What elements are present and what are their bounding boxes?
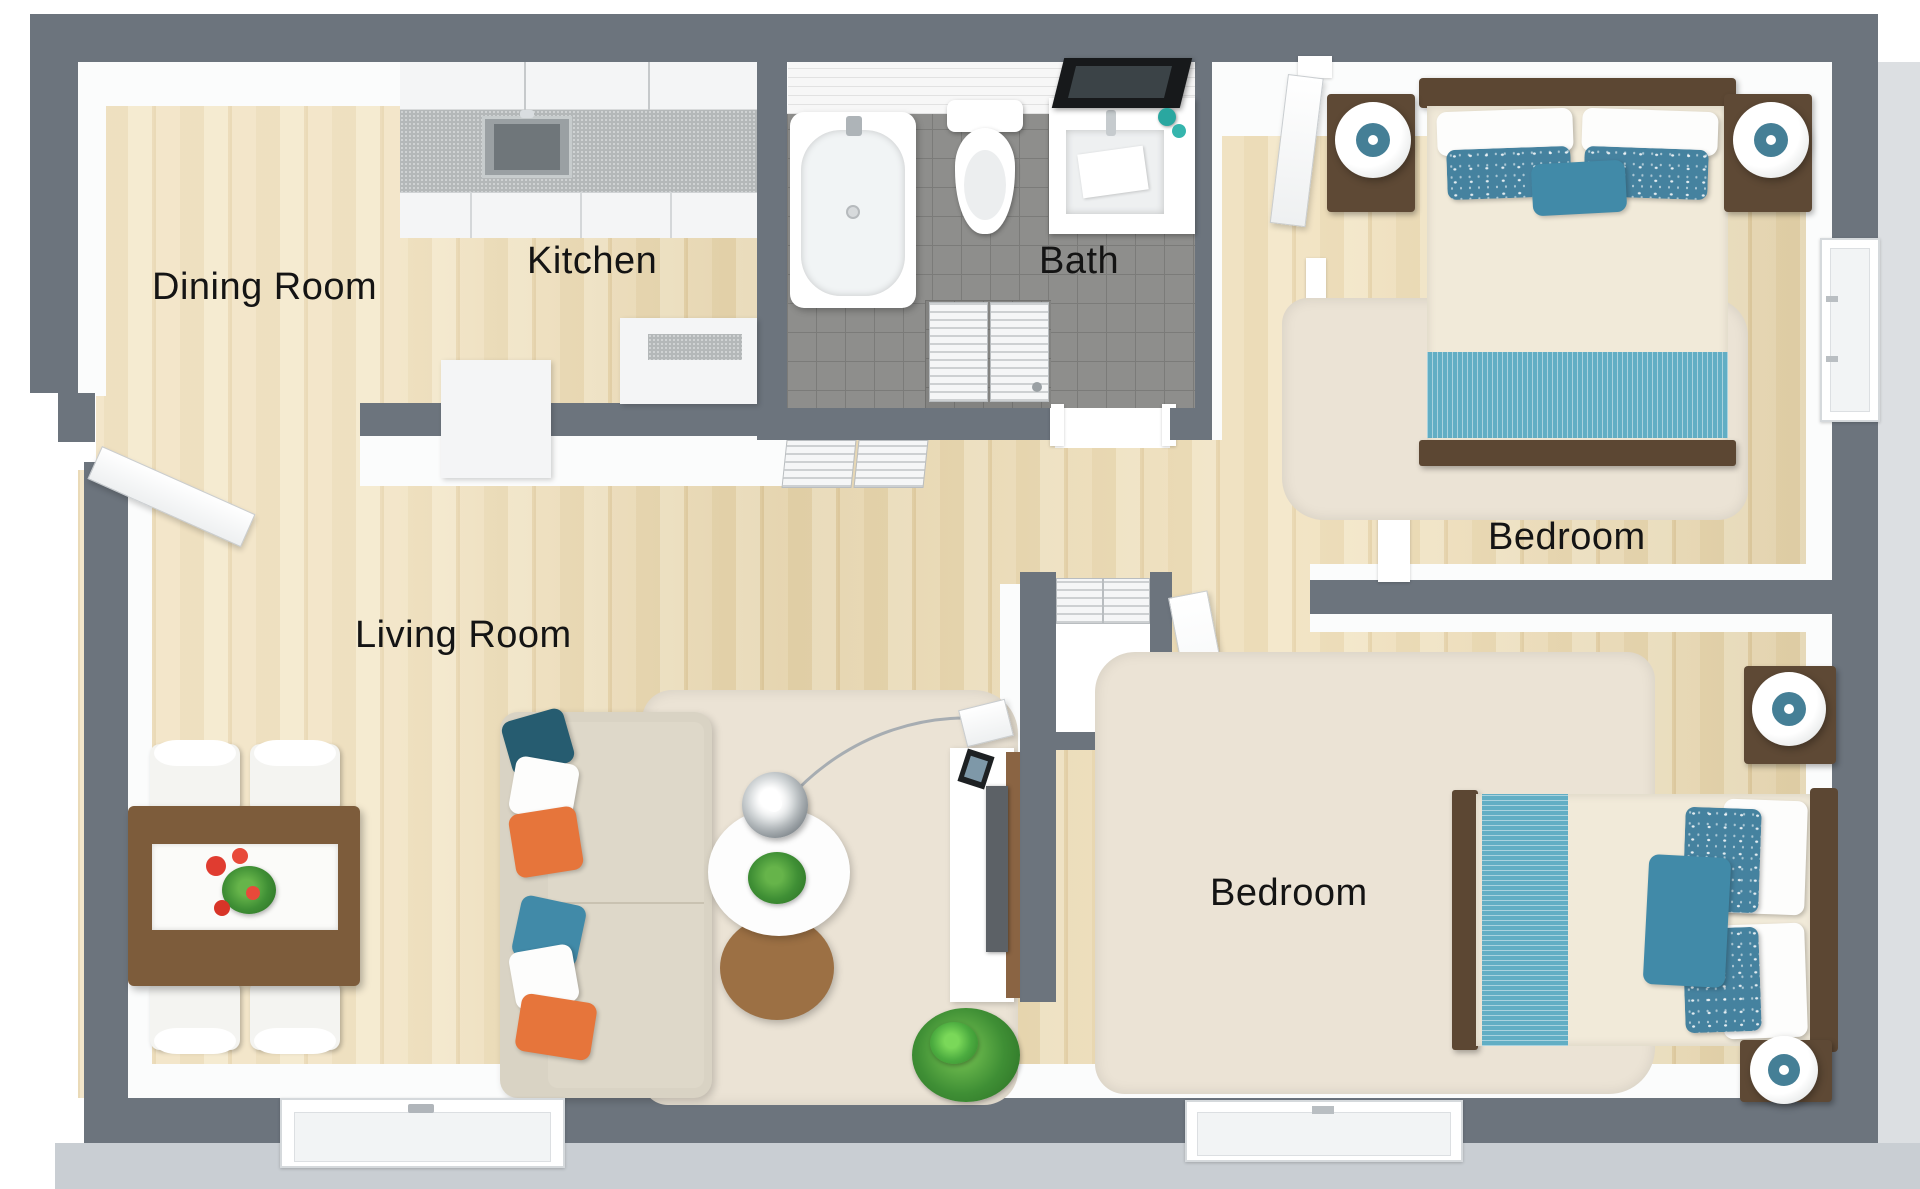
- kitchen-counter-lower: [620, 318, 757, 404]
- bathtub-faucet: [846, 116, 862, 136]
- outer-wall-right: [1832, 14, 1878, 1143]
- tv-screen: [986, 786, 1008, 952]
- table-lamp-bulb: [1779, 1065, 1789, 1075]
- arc-lamp-light: [766, 796, 782, 812]
- flowers-red: [246, 886, 260, 900]
- coffee-table-plant: [748, 852, 806, 904]
- room-label-bath: Bath: [1039, 240, 1119, 283]
- bed-top-accent-pillow: [1531, 160, 1628, 217]
- wall-face-left-upper: [78, 96, 106, 396]
- vanity-mirror-glass: [1068, 66, 1172, 98]
- closet-louver-doors: [1056, 578, 1103, 624]
- bath-accessory: [1158, 108, 1176, 126]
- window-handle: [1312, 1106, 1334, 1114]
- bed-bottom-accent-pillow: [1643, 854, 1732, 988]
- wall-hall-left: [1020, 572, 1056, 1002]
- kitchen-island: [441, 360, 551, 478]
- bed-bottom-headboard: [1810, 788, 1838, 1052]
- bed-top-footboard: [1419, 440, 1736, 466]
- bed-bottom-blanket: [1482, 794, 1568, 1046]
- cabinet-seam: [670, 192, 672, 238]
- window-bottom-sill: [1197, 1112, 1451, 1156]
- front-door-handle: [408, 1104, 434, 1113]
- room-label-living: Living Room: [355, 614, 572, 657]
- table-lamp-bulb: [1766, 135, 1776, 145]
- floor-plant-leaves: [930, 1022, 978, 1064]
- room-label-bedroom-top: Bedroom: [1488, 516, 1646, 559]
- outer-wall-left-lower: [84, 462, 128, 1143]
- window-handle: [1826, 356, 1838, 362]
- wall-bath-bottom-right: [1170, 408, 1212, 440]
- bed-bottom-footboard: [1452, 790, 1478, 1050]
- wall-bath-bottom-left: [757, 408, 1055, 440]
- flowers-red: [232, 848, 248, 864]
- dining-chair-back: [254, 1028, 336, 1054]
- floor-plan: Dining Room Kitchen Bath Bedroom Living …: [0, 0, 1920, 1189]
- bed-top-blanket: [1427, 352, 1728, 438]
- shower-door-handle: [1032, 382, 1042, 392]
- kitchen-base-cabinets: [400, 192, 757, 238]
- dining-chair-back: [154, 740, 236, 766]
- tv-console-wood: [1006, 752, 1020, 998]
- shower-door: [929, 302, 988, 402]
- kitchen-counter-lower-top: [648, 334, 742, 360]
- table-lamp-bulb: [1368, 135, 1378, 145]
- bath-accessory: [1172, 124, 1186, 138]
- wall-kitchen-bath: [757, 62, 787, 440]
- flowers-red: [214, 900, 230, 916]
- sofa-pillow: [514, 992, 598, 1061]
- outer-wall-top: [30, 14, 1878, 62]
- wall-face-bath-right: [1212, 136, 1222, 440]
- front-door-sill: [294, 1112, 551, 1162]
- toilet-seat: [964, 150, 1006, 220]
- window-right-sill: [1830, 248, 1870, 412]
- bedroom-top-door-frame: [1298, 56, 1332, 78]
- outer-face-right: [1878, 62, 1920, 1143]
- bed-top-headboard: [1419, 78, 1736, 108]
- linen-closet-doors: [781, 440, 856, 488]
- kitchen-upper-cabinets: [400, 62, 757, 110]
- wall-under-kitchen: [360, 403, 787, 436]
- window-handle: [1826, 296, 1838, 302]
- wall-bath-bedroom: [1195, 62, 1212, 440]
- bath-door-frame-left: [1050, 404, 1064, 446]
- dining-chair-back: [254, 740, 336, 766]
- room-label-bedroom-bottom: Bedroom: [1210, 872, 1368, 915]
- outer-wall-left-step: [58, 393, 95, 442]
- outer-wall-left-upper: [30, 14, 78, 395]
- vanity-faucet: [1106, 110, 1116, 136]
- closet-louver-doors: [1103, 578, 1150, 624]
- kitchen-sink-basin: [494, 124, 560, 170]
- dining-chair-back: [154, 1028, 236, 1054]
- vanity-towel: [1077, 146, 1148, 199]
- cabinet-seam: [470, 192, 472, 238]
- bathtub-drain: [846, 205, 860, 219]
- wall-between-bedrooms: [1310, 580, 1832, 614]
- wall-face-between-bedrooms-bottom: [1310, 614, 1832, 632]
- table-lamp-bulb: [1784, 704, 1794, 714]
- kitchen-faucet: [520, 110, 534, 118]
- flowers-red: [206, 856, 226, 876]
- cabinet-seam: [524, 62, 526, 110]
- cabinet-seam: [580, 192, 582, 238]
- linen-closet-doors: [853, 440, 928, 488]
- sofa-pillow: [507, 805, 584, 879]
- bath-doorway: [1055, 408, 1170, 448]
- kitchen-countertop: [400, 110, 757, 192]
- room-label-dining: Dining Room: [152, 266, 377, 309]
- wall-face-under-kitchen: [360, 436, 787, 486]
- room-label-kitchen: Kitchen: [527, 240, 657, 283]
- cabinet-seam: [648, 62, 650, 110]
